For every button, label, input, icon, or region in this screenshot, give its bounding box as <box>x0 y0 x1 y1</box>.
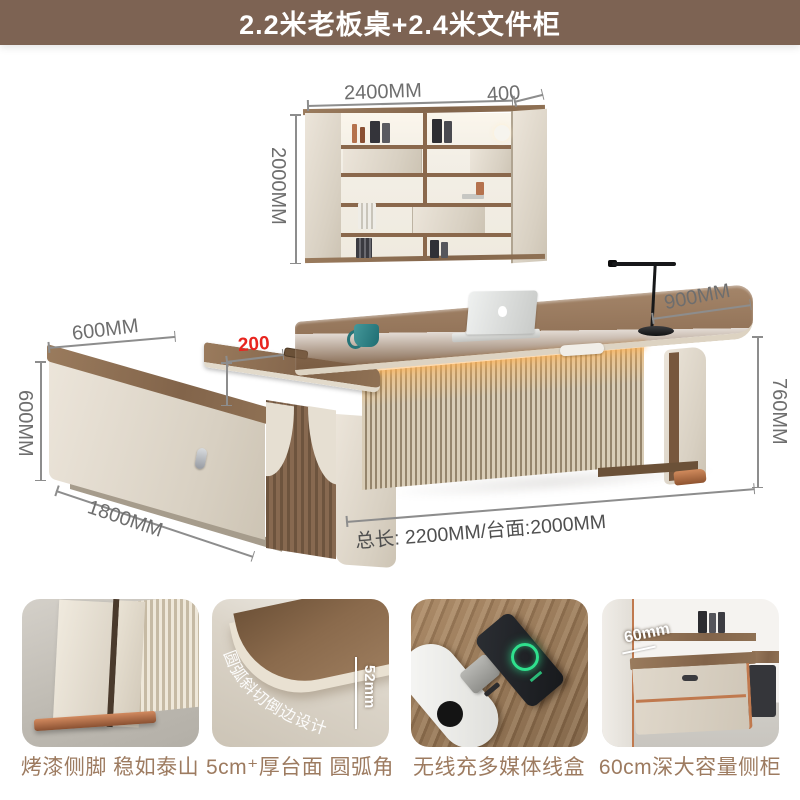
bookshelf-height-label: 2000MM <box>266 147 289 225</box>
bookshelf-right-panel <box>511 109 547 264</box>
title-banner: 2.2米老板桌+2.4米文件柜 <box>0 0 800 45</box>
feature-card-edge: 圆弧斜切倒边设计 52mm <box>212 599 389 747</box>
decor-books <box>370 121 380 143</box>
decor-books <box>698 611 707 633</box>
bookshelf-door-cell <box>412 207 485 233</box>
charging-ring <box>511 643 539 671</box>
drawer-handle <box>682 675 698 681</box>
feature-caption: 5cm⁺厚台面 圆弧角 <box>202 751 398 781</box>
decor-books <box>709 613 716 633</box>
decor-sphere-lamp <box>494 125 510 141</box>
decor-books <box>718 612 725 633</box>
decor-books <box>444 121 452 143</box>
feature-card-foot <box>22 599 199 747</box>
decor-books <box>441 242 448 258</box>
page-title: 2.2米老板桌+2.4米文件柜 <box>239 3 561 42</box>
dimension-line <box>40 361 42 481</box>
feature-card-charger <box>411 599 588 747</box>
thickness-label: 52mm <box>361 665 378 708</box>
decor-vase <box>352 124 357 143</box>
shelf-board <box>341 173 513 177</box>
svg-text:圆弧斜切倒边设计: 圆弧斜切倒边设计 <box>220 648 330 738</box>
feature-caption: 60cm深大容量侧柜 <box>592 751 788 781</box>
shelf-board <box>341 233 513 237</box>
decor-books <box>358 203 376 229</box>
decor-books <box>356 238 372 258</box>
desk-height-label: 760MM <box>767 378 790 445</box>
bookshelf-divider <box>423 113 427 260</box>
feature-card-side-cabinet: 60mm <box>602 599 779 747</box>
product-infographic-page: { "banner": { "title": "2.2米老板桌+2.4米文件柜"… <box>0 0 800 800</box>
feature-caption: 烤漆侧脚 稳如泰山 <box>12 751 208 781</box>
lamp-arm <box>612 262 676 266</box>
decor-vase <box>476 182 484 195</box>
lamp-base <box>638 326 674 336</box>
decor-books <box>382 123 390 143</box>
feature-caption: 无线充多媒体线盒 <box>401 751 597 781</box>
bookshelf-door-cell <box>343 149 422 173</box>
decor-books <box>432 119 442 143</box>
thickness-measure-line <box>355 657 357 729</box>
pc-tower <box>748 665 776 717</box>
apple-logo-icon <box>498 306 507 317</box>
charger-coil <box>437 701 463 727</box>
dimension-line <box>757 336 759 488</box>
dimension-extension-line <box>226 362 228 406</box>
decor-books <box>430 240 439 258</box>
bookshelf-left-door <box>305 113 344 260</box>
dimension-line <box>295 114 297 264</box>
tall-cabinet-column <box>602 599 634 747</box>
bookshelf-door-cell <box>470 149 513 173</box>
cabinet-height-label: 600MM <box>13 390 36 457</box>
foot-panel-left <box>53 600 113 727</box>
mug <box>354 324 379 347</box>
edge-arc-label: 圆弧斜切倒边设计 <box>220 648 330 738</box>
decor-vase <box>360 127 365 143</box>
overhang-label: 200 <box>237 333 270 357</box>
